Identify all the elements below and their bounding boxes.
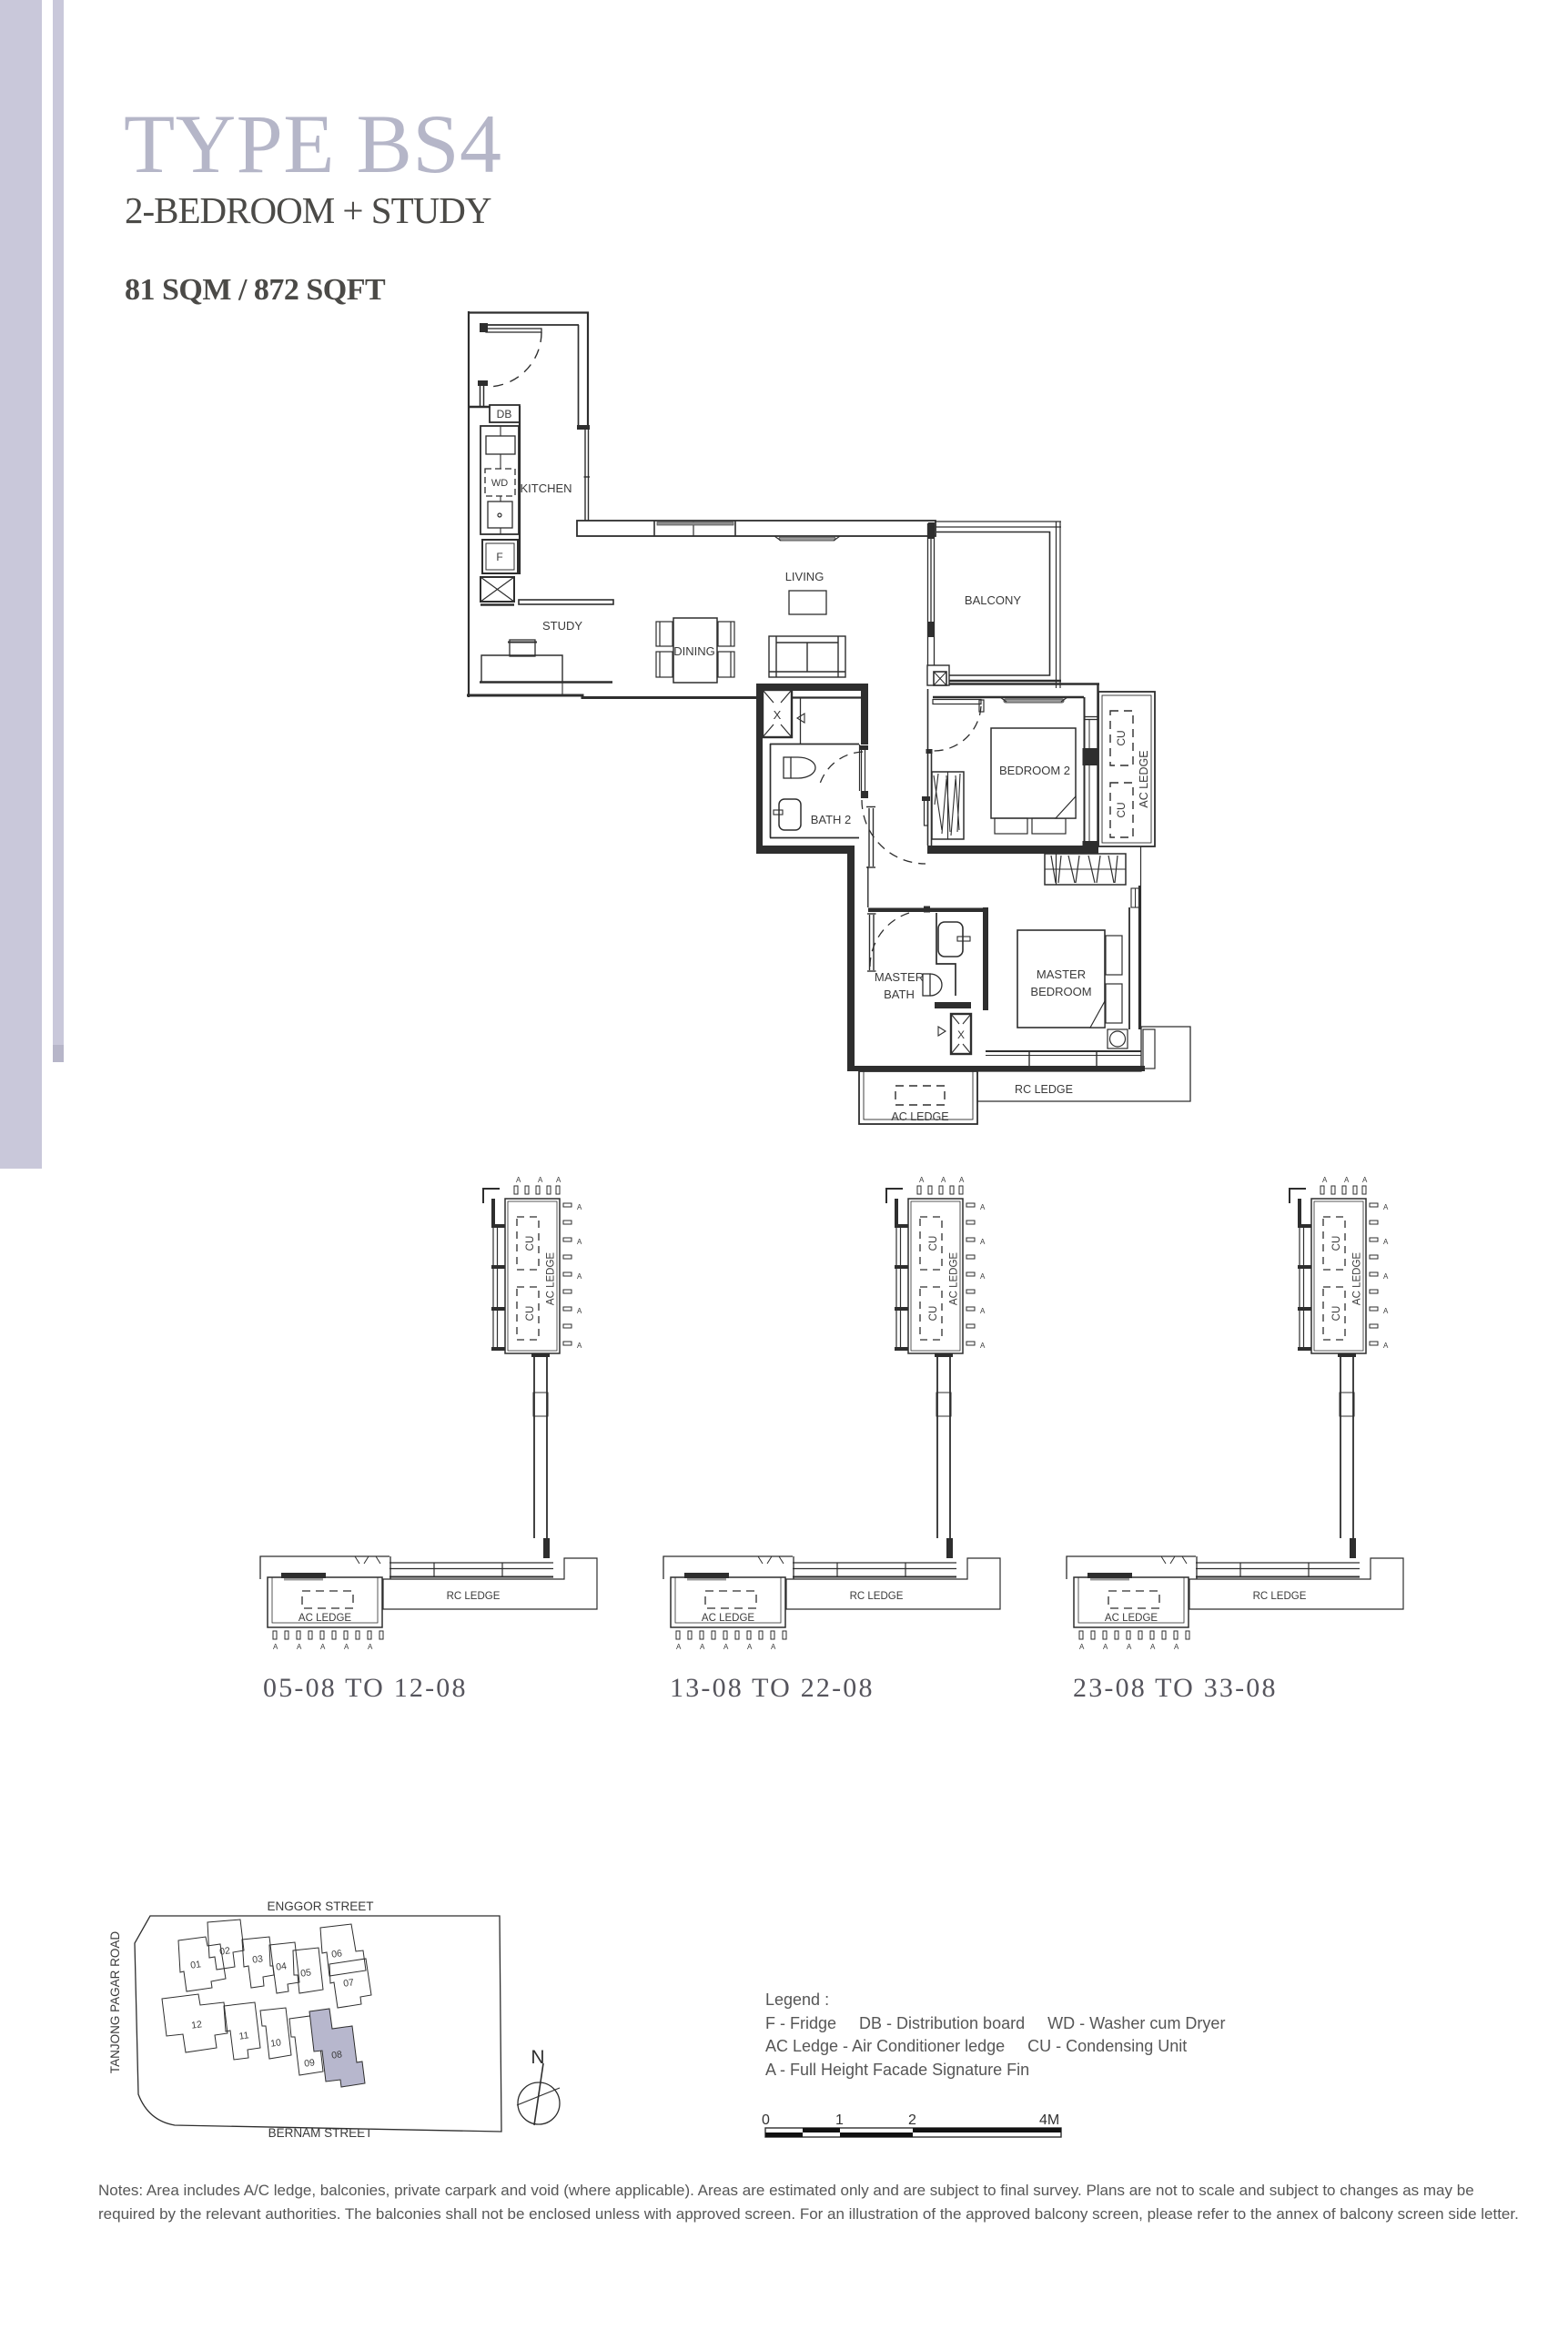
svg-text:X: X <box>957 1028 965 1041</box>
svg-text:03: 03 <box>252 1953 264 1966</box>
svg-text:1: 1 <box>835 2112 844 2128</box>
svg-text:KITCHEN: KITCHEN <box>520 481 572 495</box>
svg-text:STUDY: STUDY <box>542 619 582 633</box>
svg-text:10: 10 <box>270 2037 282 2050</box>
svg-text:X: X <box>774 708 782 722</box>
svg-text:CU: CU <box>1115 730 1128 745</box>
svg-text:09: 09 <box>304 2057 316 2070</box>
svg-text:BATH 2: BATH 2 <box>811 813 852 826</box>
svg-text:F: F <box>496 551 502 563</box>
svg-text:11: 11 <box>238 2030 250 2041</box>
svg-text:AC LEDGE: AC LEDGE <box>891 1110 948 1123</box>
svg-text:WD: WD <box>491 478 508 489</box>
svg-text:12: 12 <box>191 2019 203 2031</box>
svg-text:0: 0 <box>762 2112 770 2128</box>
svg-text:06: 06 <box>331 1948 343 1960</box>
svg-text:MASTER: MASTER <box>1037 967 1086 981</box>
svg-text:BERNAM STREET: BERNAM STREET <box>268 2126 373 2140</box>
svg-text:BEDROOM: BEDROOM <box>1030 985 1091 998</box>
svg-text:02: 02 <box>219 1945 231 1958</box>
svg-text:01: 01 <box>190 1959 202 1971</box>
svg-text:04: 04 <box>276 1960 288 1973</box>
svg-text:05: 05 <box>300 1967 312 1980</box>
svg-text:AC LEDGE: AC LEDGE <box>1138 750 1150 807</box>
svg-text:08: 08 <box>331 2049 343 2062</box>
svg-text:BALCONY: BALCONY <box>965 593 1021 607</box>
svg-text:07: 07 <box>343 1977 355 1990</box>
svg-text:LIVING: LIVING <box>785 570 824 583</box>
svg-text:BATH: BATH <box>884 988 915 1001</box>
svg-text:RC LEDGE: RC LEDGE <box>1015 1083 1073 1096</box>
svg-text:DINING: DINING <box>673 644 715 658</box>
svg-text:CU: CU <box>1115 802 1128 817</box>
svg-text:BEDROOM 2: BEDROOM 2 <box>999 764 1070 777</box>
svg-text:MASTER: MASTER <box>875 970 924 984</box>
svg-text:2: 2 <box>908 2112 916 2128</box>
svg-text:4M: 4M <box>1039 2112 1059 2128</box>
svg-text:ENGGOR STREET: ENGGOR STREET <box>267 1899 373 1913</box>
svg-text:DB: DB <box>497 408 512 420</box>
svg-text:TANJONG PAGAR ROAD: TANJONG PAGAR ROAD <box>108 1931 122 2074</box>
